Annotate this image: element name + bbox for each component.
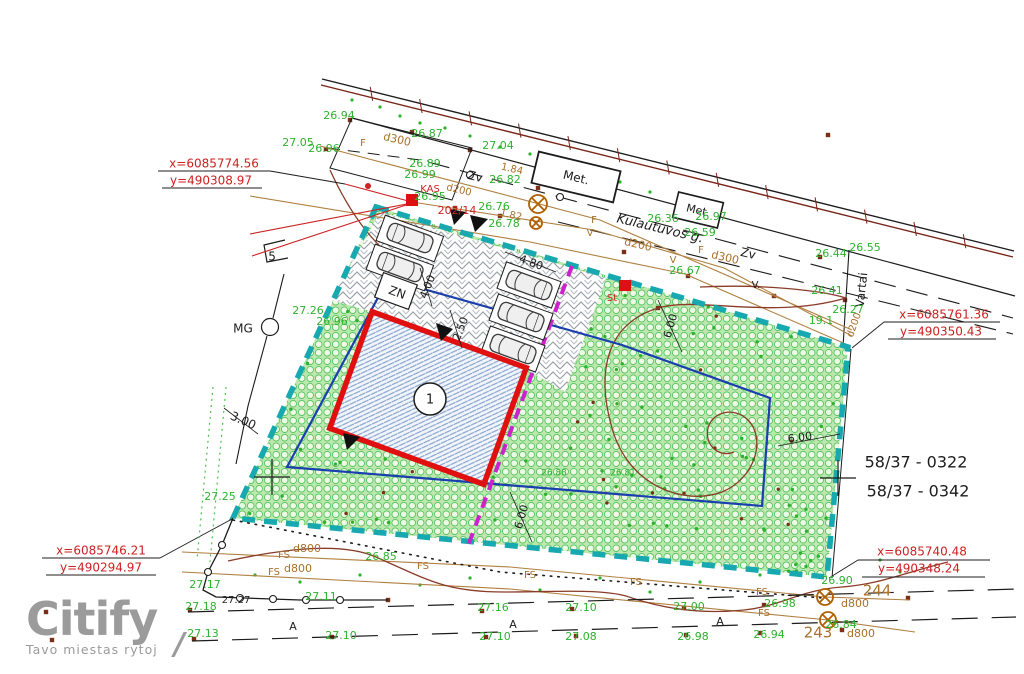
elev-26-78: 26.78	[488, 217, 520, 230]
elev-26-94-b: 26.94	[753, 628, 785, 641]
parcel-number-2: 58/37 - 0342	[867, 482, 970, 501]
coord-bottom-left-y: y=490294.97	[60, 561, 142, 575]
st-marker	[619, 280, 631, 291]
elev-26-85: 26.85	[365, 550, 397, 563]
label-st: St	[607, 293, 617, 304]
parcel-number-1: 58/37 - 0322	[865, 453, 968, 472]
label-zv-2: Zv	[739, 245, 757, 262]
elev-26-27: 26.27	[832, 303, 864, 316]
elev-26-88: 26.88	[541, 469, 567, 479]
elev-26-82: 26.82	[489, 173, 521, 186]
elev-26-41: 26.41	[811, 284, 843, 297]
coord-bottom-right-x: x=6085740.48	[877, 545, 967, 559]
elev-27-10-c: 27.10	[479, 630, 511, 643]
label-kas-number: 202/14	[438, 204, 477, 217]
elev-26-90: 26.90	[821, 574, 853, 587]
citify-tagline: Tavo miestas rytoj	[26, 644, 158, 657]
elev-26-81: 26.81	[610, 469, 636, 479]
elev-27-25: 27.25	[204, 490, 236, 503]
elev-27-08: 27.08	[565, 630, 597, 643]
elev-26-84: 26.84	[825, 618, 857, 631]
pipe-f-3: F	[698, 245, 704, 256]
elev-27-17: 27.17	[189, 578, 221, 591]
pipe-v-3: V.	[752, 280, 761, 291]
elev-26-55: 26.55	[849, 241, 881, 254]
pipe-fs-3: FS	[417, 561, 429, 572]
coord-bottom-right-y: y=490348.24	[878, 562, 960, 576]
citify-watermark: Citify Tavo miestas rytoj /	[26, 596, 158, 657]
pipe-d300-2: d300	[710, 248, 740, 267]
coord-right-y: y=490350.43	[900, 325, 982, 339]
pipe-f-1: F	[360, 138, 366, 149]
elev-26-67: 26.67	[669, 264, 701, 277]
pipe-fs-2: FS	[268, 567, 280, 578]
manhole-244: 244	[863, 582, 892, 600]
profile-a-3: A	[716, 615, 724, 628]
elev-26-59: 26.59	[684, 226, 716, 239]
elev-27-10-b: 27.10	[325, 629, 357, 642]
coord-top-left-y: y=490308.97	[170, 174, 252, 188]
elev-26-98-a: 26.98	[764, 597, 796, 610]
elev-26-97: 26.97	[695, 210, 727, 223]
elev-27-04: 27.04	[482, 139, 514, 152]
pipe-d200-2: d200	[623, 235, 653, 254]
elev-26-95: 26.95	[414, 190, 446, 203]
elev-27-18: 27.18	[185, 600, 217, 613]
coord-bottom-left-x: x=6085746.21	[56, 544, 146, 558]
pipe-d800-2: d800	[284, 562, 312, 575]
site-plan-page: x=6085774.56y=490308.97x=6085761.36y=490…	[0, 0, 1024, 674]
building-number: 1	[426, 393, 434, 408]
pipe-f-2: F	[591, 215, 597, 226]
pipe-fs-5: FS	[630, 577, 642, 588]
elev-26-94-top: 26.94	[323, 109, 355, 122]
note-27-27: 27.27	[222, 595, 251, 606]
coord-top-left-x: x=6085774.56	[169, 157, 259, 171]
elev-27-13: 27.13	[187, 627, 219, 640]
elev-26-98-b: 26.98	[677, 630, 709, 643]
pipe-d800-1: d800	[293, 542, 321, 555]
elev-27-00: 27.00	[673, 600, 705, 613]
profile-a-1: A	[289, 620, 297, 633]
elev-26-76: 26.76	[478, 200, 510, 213]
elev-26-99: 26.99	[404, 168, 436, 181]
label-mg: MG	[233, 322, 253, 336]
elev-27-11: 27.11	[305, 590, 337, 603]
label-zv-1: Zv	[466, 168, 484, 185]
elev-26-96-mid: 26.96	[316, 315, 348, 328]
coord-right-x: x=6085761.36	[899, 308, 989, 322]
elev-27-10-a: 27.10	[565, 601, 597, 614]
profile-a-2: A	[509, 618, 517, 631]
elev-19-1: 19.1	[809, 314, 834, 327]
elev-26-96-top: 26.96	[308, 142, 340, 155]
elev-26-87: 26.87	[411, 127, 443, 140]
pipe-fs-1: FS	[278, 550, 290, 561]
citify-logo-slash-icon: /	[174, 630, 185, 660]
site-plan-canvas: x=6085774.56y=490308.97x=6085761.36y=490…	[0, 0, 1024, 674]
elev-27-16: 27.16	[477, 601, 509, 614]
pipe-v-1: V	[587, 228, 594, 239]
pipe-fs-4: FS	[524, 570, 536, 581]
elev-26-44: 26.44	[815, 247, 847, 260]
elev-26-36: 26.36	[647, 212, 679, 225]
label-5: 5	[268, 250, 276, 264]
citify-logo-text: Citify	[26, 596, 158, 642]
